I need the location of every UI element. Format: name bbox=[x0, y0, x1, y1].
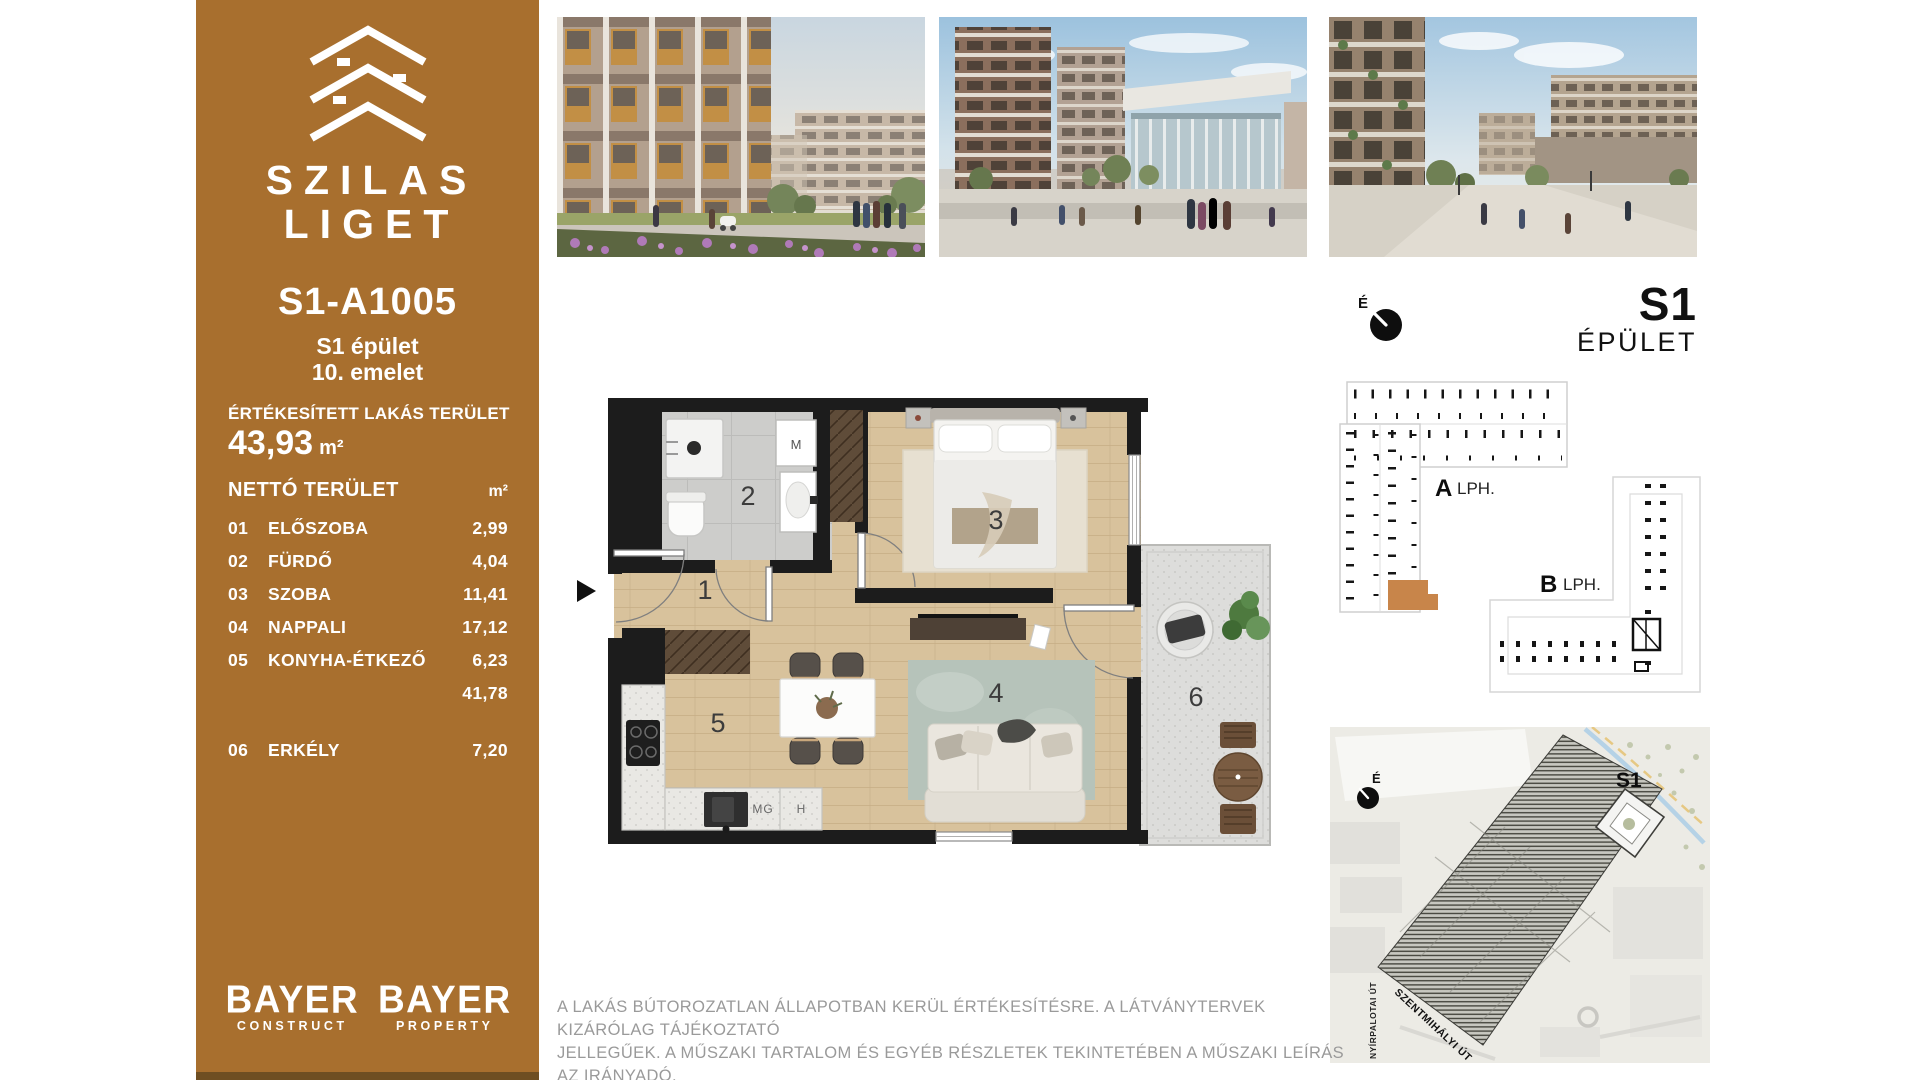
row-name: FÜRDŐ bbox=[268, 551, 472, 572]
balcony bbox=[1140, 545, 1270, 845]
row-num: 05 bbox=[228, 650, 268, 671]
logo-sub: PROPERTY bbox=[375, 1019, 516, 1033]
wardrobe-hall bbox=[665, 630, 750, 674]
floor-name: 10. emelet bbox=[196, 359, 539, 385]
room-label-1: 1 bbox=[697, 575, 712, 605]
unit-id: S1-A1005 bbox=[196, 281, 539, 324]
room-label-5: 5 bbox=[710, 708, 725, 738]
row-area: 11,41 bbox=[463, 584, 508, 605]
area-table: 01 ELŐSZOBA 2,99 02 FÜRDŐ 4,04 03 SZOBA … bbox=[228, 518, 508, 773]
stair-b-letter: B bbox=[1540, 571, 1557, 598]
row-num: 04 bbox=[228, 617, 268, 638]
pillow bbox=[998, 425, 1051, 452]
balcony-chair bbox=[1220, 804, 1256, 834]
row-name: KONYHA-ÉTKEZŐ bbox=[268, 650, 472, 671]
building-name: S1 épület bbox=[196, 333, 539, 359]
logo-window bbox=[393, 74, 406, 82]
developer-logos: BAYER CONSTRUCT BAYER PROPERTY bbox=[222, 983, 515, 1033]
street-vertical-label: NYÍRPALOTAI ÚT bbox=[1367, 982, 1378, 1059]
fridge-label: H bbox=[797, 802, 806, 816]
row-num: 01 bbox=[228, 518, 268, 539]
row-area: 7,20 bbox=[472, 740, 508, 761]
dishwasher-label: MG bbox=[752, 802, 773, 816]
building-floor: S1 épület 10. emelet bbox=[196, 333, 539, 385]
stair-labels: A LPH. B LPH. bbox=[1435, 475, 1601, 598]
sold-area-value: 43,93m² bbox=[228, 424, 344, 463]
stair-a-letter: A bbox=[1435, 475, 1452, 502]
subtotal-row: 41,78 bbox=[228, 683, 508, 703]
toilet-tank bbox=[666, 492, 706, 502]
pillow bbox=[939, 425, 992, 452]
room-label-3: 3 bbox=[988, 505, 1003, 535]
render-plaza bbox=[939, 189, 1307, 257]
balcony-door-leaf bbox=[1064, 605, 1134, 611]
bedroom-window bbox=[1129, 455, 1140, 545]
logo-chevron-3 bbox=[315, 106, 421, 136]
bathroom-door-leaf bbox=[766, 567, 772, 621]
row-area: 4,04 bbox=[472, 551, 508, 572]
brand-name: SZILAS LIGET bbox=[196, 158, 539, 246]
render-photo-plaza bbox=[939, 17, 1307, 257]
render-photo-street bbox=[1329, 17, 1697, 257]
sink-basin bbox=[786, 482, 810, 518]
net-area-unit: m² bbox=[488, 483, 508, 501]
dining-chair bbox=[790, 738, 820, 764]
sidebar-bottom-strip bbox=[196, 1072, 539, 1080]
washer-label: M bbox=[791, 437, 802, 452]
wardrobe-tall bbox=[830, 410, 863, 522]
bedroom-door-leaf bbox=[858, 533, 865, 588]
subtotal-value: 41,78 bbox=[462, 683, 508, 704]
table-row: 04 NAPPALI 17,12 bbox=[228, 617, 508, 637]
stair-a-text: LPH. bbox=[1457, 479, 1495, 498]
keyplan-building-code: S1 bbox=[1450, 283, 1697, 325]
row-name: SZOBA bbox=[268, 584, 463, 605]
sold-area-unit: m² bbox=[319, 437, 343, 459]
table-row: 02 FÜRDŐ 4,04 bbox=[228, 551, 508, 571]
balcony-row: 06 ERKÉLY 7,20 bbox=[228, 740, 508, 760]
dining-chair bbox=[833, 653, 863, 679]
keyplan-title: S1 ÉPÜLET bbox=[1450, 283, 1697, 358]
kitchen-faucet bbox=[723, 826, 730, 833]
highlighted-unit bbox=[1388, 580, 1438, 610]
kitchen-sink-basin bbox=[712, 797, 734, 822]
keyplan-compass: É bbox=[1352, 292, 1416, 348]
map-roundabout bbox=[1579, 1008, 1597, 1026]
disclaimer: A LAKÁS BÚTOROZATLAN ÁLLAPOTBAN KERÜL ÉR… bbox=[557, 996, 1347, 1080]
brochure-page: SZILAS LIGET S1-A1005 S1 épület 10. emel… bbox=[0, 0, 1920, 1080]
row-name: ERKÉLY bbox=[268, 740, 472, 761]
logo-name: BAYER bbox=[375, 982, 516, 1018]
shower-drain bbox=[687, 441, 701, 455]
net-area-label: NETTÓ TERÜLET bbox=[228, 479, 399, 502]
table-row: 01 ELŐSZOBA 2,99 bbox=[228, 518, 508, 538]
render-plaza-strip bbox=[939, 203, 1307, 219]
dining-chair bbox=[790, 653, 820, 679]
net-area-header: NETTÓ TERÜLET m² bbox=[228, 479, 508, 502]
dining-chair bbox=[833, 738, 863, 764]
tv-console bbox=[910, 618, 1026, 640]
tv bbox=[918, 614, 1018, 618]
floorplan: M MG H bbox=[600, 392, 1280, 859]
room-label-4: 4 bbox=[988, 678, 1003, 708]
keyplan-wing-a bbox=[1340, 382, 1567, 612]
table-row: 03 SZOBA 11,41 bbox=[228, 584, 508, 604]
sold-area-label: ÉRTÉKESÍTETT LAKÁS TERÜLET bbox=[228, 404, 511, 424]
logo-window bbox=[333, 96, 346, 104]
logo-sub: CONSTRUCT bbox=[222, 1019, 363, 1033]
sold-area-number: 43,93 bbox=[228, 424, 313, 462]
row-area: 6,23 bbox=[472, 650, 508, 671]
bayer-construct-logo: BAYER CONSTRUCT bbox=[222, 983, 363, 1033]
room-label-2: 2 bbox=[740, 481, 755, 511]
render-photo-courtyard bbox=[557, 17, 925, 257]
row-num: 02 bbox=[228, 551, 268, 572]
keyplan: A LPH. B LPH. bbox=[1330, 372, 1710, 707]
keyplan-building-label: ÉPÜLET bbox=[1450, 327, 1697, 358]
sitemap: S1 É NYÍRPALOTAI ÚT SZENTMIHÁLYI ÚT bbox=[1330, 727, 1710, 1068]
map-compass-label: É bbox=[1372, 771, 1381, 786]
bayer-property-logo: BAYER PROPERTY bbox=[375, 983, 516, 1033]
render-left-building bbox=[1329, 17, 1425, 213]
room-label-6: 6 bbox=[1188, 682, 1203, 712]
compass-north-label: É bbox=[1358, 295, 1368, 312]
entry-door-leaf bbox=[614, 550, 684, 556]
disclaimer-line-2: JELLEGŰEK. A MŰSZAKI TARTALOM ÉS EGYÉB R… bbox=[557, 1042, 1347, 1080]
table-row: 05 KONYHA-ÉTKEZŐ 6,23 bbox=[228, 650, 508, 670]
logo-chevron-2 bbox=[315, 68, 421, 98]
row-area: 2,99 bbox=[472, 518, 508, 539]
stair-b-text: LPH. bbox=[1563, 575, 1601, 594]
szilas-liget-logo-icon bbox=[307, 22, 429, 153]
brand-line-2: LIGET bbox=[204, 202, 539, 246]
row-num: 06 bbox=[228, 740, 268, 761]
row-name: ELŐSZOBA bbox=[268, 518, 472, 539]
brand-line-1: SZILAS bbox=[204, 158, 539, 202]
entrance-arrow-icon bbox=[577, 580, 596, 602]
sink-tap bbox=[810, 496, 818, 504]
logo-window bbox=[337, 58, 350, 66]
row-area: 17,12 bbox=[462, 617, 508, 638]
logo-name: BAYER bbox=[222, 982, 363, 1018]
disclaimer-line-1: A LAKÁS BÚTOROZATLAN ÁLLAPOTBAN KERÜL ÉR… bbox=[557, 996, 1347, 1042]
map-s1-label: S1 bbox=[1616, 769, 1642, 792]
row-num: 03 bbox=[228, 584, 268, 605]
logo-chevron-1 bbox=[315, 30, 421, 60]
sidebar: SZILAS LIGET S1-A1005 S1 épület 10. emel… bbox=[196, 0, 539, 1080]
row-name: NAPPALI bbox=[268, 617, 462, 638]
